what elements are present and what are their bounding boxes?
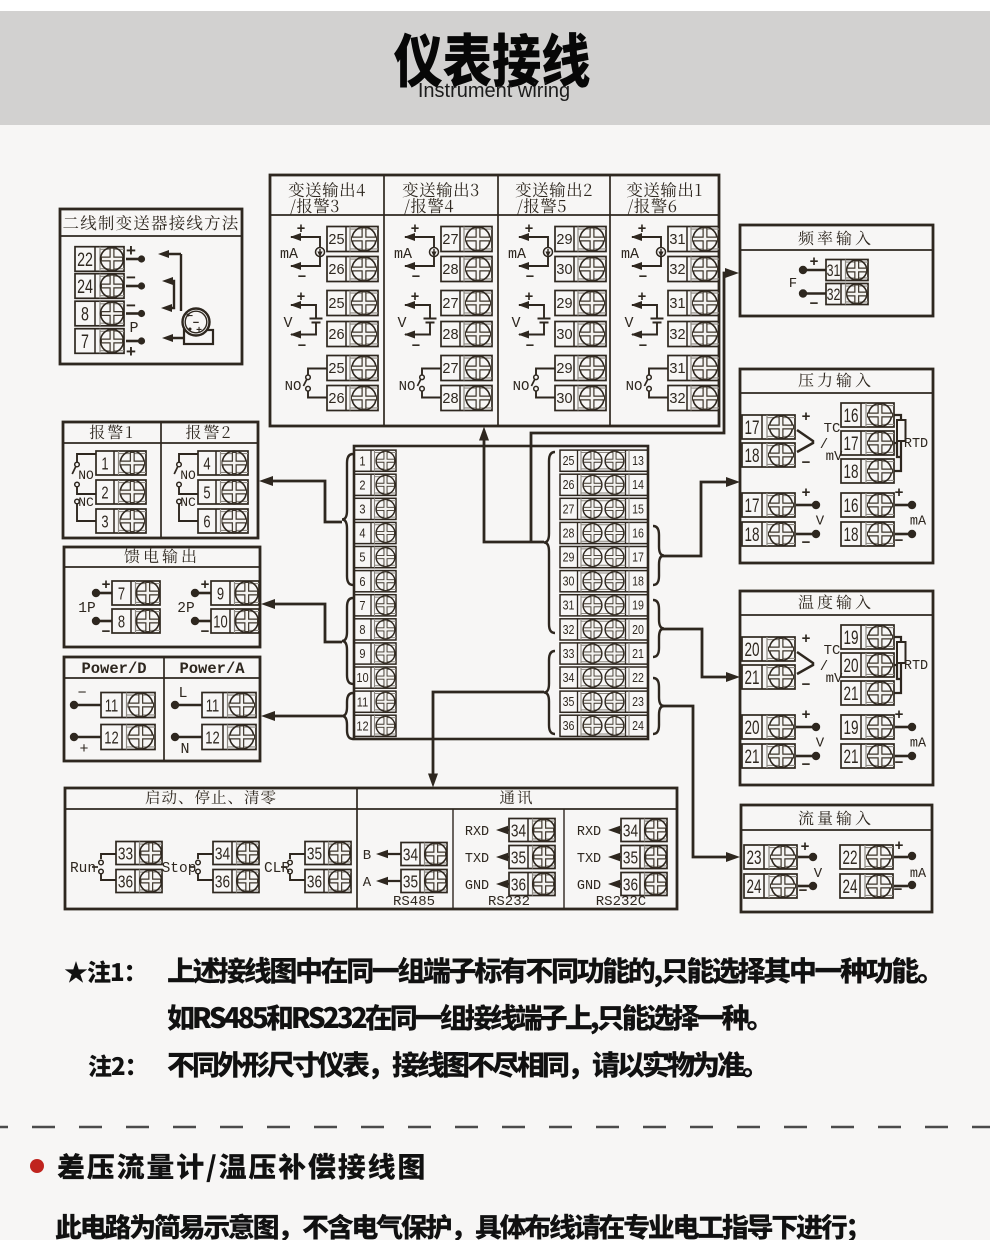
svg-text:RS232: RS232 bbox=[488, 894, 530, 910]
svg-text:馈电输出: 馈电输出 bbox=[124, 544, 200, 567]
svg-text:22: 22 bbox=[77, 249, 93, 270]
svg-text:16: 16 bbox=[632, 527, 644, 541]
svg-text:/报警5: /报警5 bbox=[517, 193, 567, 217]
svg-text:30: 30 bbox=[556, 391, 572, 407]
svg-text:NO: NO bbox=[626, 379, 643, 395]
svg-text:+: + bbox=[802, 408, 811, 425]
svg-text:mA: mA bbox=[508, 246, 526, 263]
svg-text:上述接线图中在同一组端子标有不同功能的,只能选择其中一种功能: 上述接线图中在同一组端子标有不同功能的,只能选择其中一种功能。 bbox=[167, 950, 942, 990]
svg-text:+: + bbox=[895, 484, 904, 501]
svg-text:mA: mA bbox=[910, 867, 927, 882]
svg-text:20: 20 bbox=[744, 718, 759, 739]
svg-text:−: − bbox=[639, 338, 647, 354]
svg-text:22: 22 bbox=[632, 671, 644, 685]
svg-text:22: 22 bbox=[842, 848, 857, 869]
svg-text:+: + bbox=[126, 241, 136, 260]
svg-text:12: 12 bbox=[205, 729, 219, 749]
svg-text:RXD: RXD bbox=[465, 825, 489, 840]
svg-text:35: 35 bbox=[623, 849, 638, 868]
svg-text:8: 8 bbox=[81, 303, 89, 324]
svg-text:−: − bbox=[412, 269, 420, 285]
svg-text:27: 27 bbox=[563, 503, 575, 517]
svg-text:29: 29 bbox=[556, 361, 572, 377]
svg-text:26: 26 bbox=[563, 478, 575, 492]
svg-text:NO: NO bbox=[78, 468, 94, 483]
svg-text:Stop: Stop bbox=[162, 861, 197, 877]
svg-text:17: 17 bbox=[843, 434, 858, 455]
svg-text:Power/D: Power/D bbox=[81, 660, 146, 678]
svg-text:如RS485和RS232在同一组接线端子上,只能选择一种。: 如RS485和RS232在同一组接线端子上,只能选择一种。 bbox=[167, 997, 772, 1037]
svg-text:18: 18 bbox=[744, 525, 759, 546]
svg-text:4: 4 bbox=[203, 455, 210, 475]
svg-text:9: 9 bbox=[217, 585, 224, 605]
svg-text:注2：: 注2： bbox=[88, 1047, 148, 1082]
svg-text:温度输入: 温度输入 bbox=[798, 590, 874, 613]
svg-text:8: 8 bbox=[359, 622, 365, 637]
svg-text:−: − bbox=[298, 338, 306, 354]
svg-text:TXD: TXD bbox=[577, 852, 601, 867]
svg-text:25: 25 bbox=[328, 232, 344, 248]
svg-text:mA: mA bbox=[910, 737, 927, 752]
svg-text:此电路为简易示意图，不含电气保护，具体布线请在专业电工指导下: 此电路为简易示意图，不含电气保护，具体布线请在专业电工指导下进行； bbox=[55, 1206, 870, 1240]
svg-text:21: 21 bbox=[843, 684, 858, 705]
svg-text:NC: NC bbox=[180, 495, 196, 510]
svg-text:34: 34 bbox=[511, 822, 526, 841]
svg-text:5: 5 bbox=[203, 484, 210, 504]
svg-text:GND: GND bbox=[577, 879, 601, 894]
svg-text:35: 35 bbox=[511, 849, 526, 868]
svg-text:−: − bbox=[126, 296, 136, 315]
svg-text:6: 6 bbox=[359, 574, 365, 589]
svg-text:RTD: RTD bbox=[904, 437, 928, 452]
svg-text:mA: mA bbox=[621, 246, 639, 263]
svg-text:NO: NO bbox=[513, 379, 530, 395]
svg-text:11: 11 bbox=[206, 697, 219, 717]
svg-text:报警2: 报警2 bbox=[186, 420, 233, 443]
svg-text:6: 6 bbox=[203, 513, 210, 533]
svg-text:流量输入: 流量输入 bbox=[798, 806, 874, 829]
svg-text:NC: NC bbox=[78, 495, 94, 510]
svg-text:+: + bbox=[102, 576, 111, 593]
svg-text:2: 2 bbox=[359, 478, 365, 493]
svg-text:+: + bbox=[802, 706, 811, 723]
svg-text:34: 34 bbox=[215, 845, 230, 864]
svg-text:★注1：: ★注1： bbox=[64, 953, 147, 988]
svg-text:34: 34 bbox=[403, 846, 418, 865]
svg-text:30: 30 bbox=[556, 327, 572, 343]
svg-text:19: 19 bbox=[632, 599, 644, 613]
svg-text:18: 18 bbox=[843, 525, 858, 546]
svg-text:通讯: 通讯 bbox=[499, 786, 534, 808]
svg-text:26: 26 bbox=[328, 391, 344, 407]
svg-text:21: 21 bbox=[744, 668, 759, 689]
svg-text:21: 21 bbox=[843, 747, 858, 768]
svg-text:29: 29 bbox=[563, 551, 575, 565]
svg-text:启动、停止、清零: 启动、停止、清零 bbox=[145, 786, 277, 808]
svg-text:36: 36 bbox=[623, 876, 638, 895]
svg-text:F: F bbox=[789, 276, 797, 292]
svg-text:NO: NO bbox=[285, 379, 302, 395]
svg-text:CLR: CLR bbox=[264, 861, 290, 877]
svg-text:1: 1 bbox=[101, 455, 108, 475]
svg-text:26: 26 bbox=[328, 262, 344, 278]
svg-text:20: 20 bbox=[843, 656, 858, 677]
svg-text:−: − bbox=[201, 623, 210, 640]
svg-text:V: V bbox=[816, 736, 825, 752]
svg-text:报警1: 报警1 bbox=[89, 420, 135, 443]
svg-text:+: + bbox=[126, 342, 136, 361]
svg-text:29: 29 bbox=[556, 232, 572, 248]
svg-text:不同外形尺寸仪表，接线图不尽相同，请以实物为准。: 不同外形尺寸仪表，接线图不尽相同，请以实物为准。 bbox=[167, 1044, 767, 1084]
svg-text:5: 5 bbox=[359, 550, 365, 565]
svg-text:2: 2 bbox=[101, 484, 108, 504]
svg-text:7: 7 bbox=[118, 585, 125, 605]
svg-text:32: 32 bbox=[669, 262, 685, 278]
svg-text:23: 23 bbox=[632, 695, 644, 709]
svg-text:A: A bbox=[363, 875, 372, 891]
svg-text:mA: mA bbox=[394, 246, 412, 263]
svg-text:28: 28 bbox=[442, 262, 458, 278]
svg-text:V: V bbox=[816, 514, 825, 530]
svg-text:7: 7 bbox=[359, 598, 365, 613]
svg-text:33: 33 bbox=[563, 647, 575, 661]
svg-text:Power/A: Power/A bbox=[179, 660, 245, 678]
svg-text:31: 31 bbox=[669, 296, 685, 312]
svg-text:1P: 1P bbox=[78, 601, 95, 617]
svg-text:21: 21 bbox=[632, 647, 644, 661]
svg-text:3: 3 bbox=[101, 513, 108, 533]
svg-text:24: 24 bbox=[632, 719, 644, 733]
svg-text:13: 13 bbox=[632, 454, 644, 468]
svg-text:1: 1 bbox=[359, 453, 365, 468]
svg-text:TXD: TXD bbox=[465, 852, 489, 867]
svg-text:27: 27 bbox=[442, 361, 458, 377]
svg-text:TC: TC bbox=[824, 643, 841, 659]
svg-text:NO: NO bbox=[399, 379, 416, 395]
svg-text:mA: mA bbox=[280, 246, 298, 263]
svg-text:−: − bbox=[895, 532, 904, 549]
svg-text:31: 31 bbox=[827, 262, 841, 280]
svg-text:14: 14 bbox=[632, 478, 644, 492]
svg-text:17: 17 bbox=[744, 418, 759, 439]
svg-text:RS485: RS485 bbox=[393, 894, 435, 910]
svg-text:19: 19 bbox=[843, 718, 858, 739]
svg-text:−: − bbox=[102, 623, 111, 640]
svg-text:+: + bbox=[810, 253, 819, 270]
svg-text:−: − bbox=[799, 882, 808, 899]
svg-text:−: − bbox=[802, 534, 811, 551]
svg-text:36: 36 bbox=[307, 873, 322, 892]
svg-text:27: 27 bbox=[442, 232, 458, 248]
svg-text:34: 34 bbox=[623, 822, 638, 841]
svg-text:V: V bbox=[624, 315, 633, 332]
svg-text:−: − bbox=[526, 269, 534, 285]
svg-text:12: 12 bbox=[356, 719, 369, 734]
svg-text:−: − bbox=[802, 454, 811, 471]
svg-text:TC: TC bbox=[824, 421, 841, 437]
svg-text:20: 20 bbox=[632, 623, 644, 637]
svg-text:36: 36 bbox=[118, 873, 133, 892]
svg-text:−: − bbox=[802, 676, 811, 693]
svg-text:NO: NO bbox=[180, 468, 196, 483]
svg-text:N: N bbox=[180, 741, 189, 758]
svg-text:25: 25 bbox=[328, 361, 344, 377]
svg-text:35: 35 bbox=[307, 845, 322, 864]
svg-text:V: V bbox=[283, 315, 292, 332]
svg-text:+: + bbox=[802, 484, 811, 501]
svg-text:16: 16 bbox=[843, 496, 858, 517]
svg-text:18: 18 bbox=[632, 575, 644, 589]
svg-text:32: 32 bbox=[669, 327, 685, 343]
svg-text:25: 25 bbox=[563, 454, 575, 468]
svg-text:−: − bbox=[526, 338, 534, 354]
svg-text:25: 25 bbox=[328, 296, 344, 312]
svg-text:33: 33 bbox=[118, 845, 133, 864]
svg-text:−: − bbox=[894, 881, 903, 898]
svg-text:9: 9 bbox=[359, 646, 365, 661]
svg-text:31: 31 bbox=[669, 361, 685, 377]
svg-text:26: 26 bbox=[328, 327, 344, 343]
svg-text:2P: 2P bbox=[177, 601, 194, 617]
svg-text:P: P bbox=[129, 320, 138, 337]
svg-text:35: 35 bbox=[403, 873, 418, 892]
svg-text:17: 17 bbox=[632, 551, 644, 565]
svg-text:/报警4: /报警4 bbox=[404, 193, 454, 217]
svg-text:/报警3: /报警3 bbox=[290, 193, 340, 217]
svg-text:−: − bbox=[412, 338, 420, 354]
svg-text:L: L bbox=[178, 685, 187, 702]
svg-text:32: 32 bbox=[669, 391, 685, 407]
svg-text:11: 11 bbox=[105, 697, 118, 717]
svg-text:−: − bbox=[810, 295, 819, 312]
svg-text:29: 29 bbox=[556, 296, 572, 312]
svg-text:31: 31 bbox=[669, 232, 685, 248]
svg-text:18: 18 bbox=[843, 462, 858, 483]
svg-text:RXD: RXD bbox=[577, 825, 601, 840]
svg-text:10: 10 bbox=[213, 613, 228, 633]
svg-text:+: + bbox=[895, 837, 904, 854]
svg-text:RTD: RTD bbox=[904, 659, 928, 674]
svg-text:24: 24 bbox=[746, 877, 761, 898]
svg-text:−: − bbox=[298, 269, 306, 285]
svg-text:V: V bbox=[814, 866, 823, 882]
svg-text:8: 8 bbox=[118, 613, 125, 633]
svg-text:−: − bbox=[895, 754, 904, 771]
svg-text:28: 28 bbox=[442, 391, 458, 407]
svg-text:32: 32 bbox=[563, 623, 575, 637]
svg-text:−: − bbox=[77, 685, 86, 702]
svg-text:−: − bbox=[639, 269, 647, 285]
svg-text:+: + bbox=[895, 706, 904, 723]
svg-text:差压流量计/温压补偿接线图: 差压流量计/温压补偿接线图 bbox=[57, 1146, 427, 1186]
svg-text:GND: GND bbox=[465, 879, 489, 894]
svg-text:34: 34 bbox=[563, 671, 575, 685]
svg-text:7: 7 bbox=[81, 331, 89, 352]
svg-text:+: + bbox=[79, 741, 88, 758]
svg-text:19: 19 bbox=[843, 628, 858, 649]
svg-text:27: 27 bbox=[442, 296, 458, 312]
svg-text:28: 28 bbox=[563, 527, 575, 541]
svg-text:18: 18 bbox=[744, 446, 759, 467]
svg-text:28: 28 bbox=[442, 327, 458, 343]
svg-text:11: 11 bbox=[357, 694, 369, 709]
svg-text:压力输入: 压力输入 bbox=[798, 368, 874, 391]
svg-text:+: + bbox=[801, 838, 810, 855]
svg-text:20: 20 bbox=[744, 640, 759, 661]
svg-text:3: 3 bbox=[359, 502, 365, 517]
svg-text:16: 16 bbox=[843, 406, 858, 427]
svg-text:V: V bbox=[511, 315, 520, 332]
svg-text:30: 30 bbox=[556, 262, 572, 278]
svg-text:17: 17 bbox=[744, 496, 759, 517]
svg-text:36: 36 bbox=[215, 873, 230, 892]
svg-text:36: 36 bbox=[511, 876, 526, 895]
svg-text:−: − bbox=[126, 268, 136, 287]
svg-text:24: 24 bbox=[842, 877, 857, 898]
svg-text:+: + bbox=[196, 325, 202, 336]
svg-text:RS232C: RS232C bbox=[596, 894, 646, 910]
svg-text:频率输入: 频率输入 bbox=[798, 226, 874, 249]
svg-text:/报警6: /报警6 bbox=[627, 193, 677, 217]
svg-text:32: 32 bbox=[827, 286, 841, 304]
svg-text:36: 36 bbox=[563, 719, 575, 733]
svg-text:Instrument wiring: Instrument wiring bbox=[418, 80, 570, 102]
svg-text:4: 4 bbox=[359, 526, 365, 541]
svg-text:21: 21 bbox=[744, 747, 759, 768]
svg-text:30: 30 bbox=[563, 575, 575, 589]
svg-text:mA: mA bbox=[910, 515, 927, 530]
svg-text:12: 12 bbox=[104, 729, 118, 749]
svg-text:23: 23 bbox=[746, 848, 761, 869]
svg-text:+: + bbox=[802, 630, 811, 647]
svg-text:V: V bbox=[397, 315, 406, 332]
svg-text:+: + bbox=[201, 576, 210, 593]
svg-text:Run: Run bbox=[70, 861, 96, 877]
svg-text:−: − bbox=[802, 756, 811, 773]
svg-text:10: 10 bbox=[356, 670, 369, 685]
svg-text:35: 35 bbox=[563, 695, 575, 709]
svg-text:B: B bbox=[363, 848, 371, 864]
svg-text:24: 24 bbox=[77, 276, 93, 297]
svg-text:二线制变送器接线方法: 二线制变送器接线方法 bbox=[63, 210, 240, 234]
svg-text:15: 15 bbox=[632, 503, 644, 517]
svg-text:31: 31 bbox=[563, 599, 575, 613]
